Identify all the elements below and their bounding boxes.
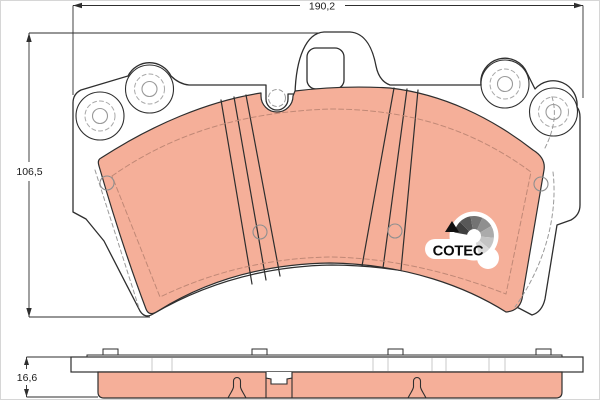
- drawing-canvas: COTEC 190,2 106,5: [0, 0, 600, 400]
- friction-side: [98, 372, 562, 398]
- backplate-side: [71, 357, 583, 372]
- tab-hole: [307, 48, 344, 89]
- brake-pad-drawing: COTEC 190,2 106,5: [0, 0, 600, 400]
- logo-text: COTEC: [433, 244, 484, 260]
- dim-width-label: 190,2: [309, 1, 335, 13]
- dim-thickness-label: 16,6: [17, 372, 38, 384]
- dim-height-label: 106,5: [16, 166, 42, 178]
